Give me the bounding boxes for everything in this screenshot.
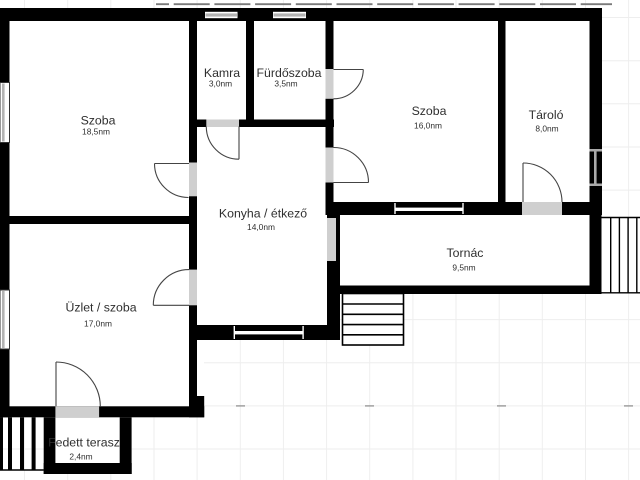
svg-text:14,0nm: 14,0nm bbox=[247, 222, 275, 232]
svg-text:16,0nm: 16,0nm bbox=[414, 121, 442, 131]
svg-text:2,4nm: 2,4nm bbox=[69, 452, 92, 462]
svg-text:Fedett terasz: Fedett terasz bbox=[48, 436, 120, 450]
svg-text:Szoba: Szoba bbox=[412, 104, 447, 118]
svg-text:Tároló: Tároló bbox=[529, 108, 564, 122]
svg-text:Konyha / étkező: Konyha / étkező bbox=[219, 207, 307, 221]
svg-text:Tornác: Tornác bbox=[447, 246, 484, 260]
svg-text:3,5nm: 3,5nm bbox=[274, 79, 297, 89]
svg-text:8,0nm: 8,0nm bbox=[535, 124, 558, 134]
svg-text:Szoba: Szoba bbox=[81, 114, 116, 128]
svg-text:9,5nm: 9,5nm bbox=[452, 263, 475, 273]
svg-text:Üzlet / szoba: Üzlet / szoba bbox=[65, 301, 136, 315]
svg-text:17,0nm: 17,0nm bbox=[84, 319, 112, 329]
svg-text:18,5nm: 18,5nm bbox=[82, 127, 110, 137]
svg-text:3,0nm: 3,0nm bbox=[209, 79, 232, 89]
